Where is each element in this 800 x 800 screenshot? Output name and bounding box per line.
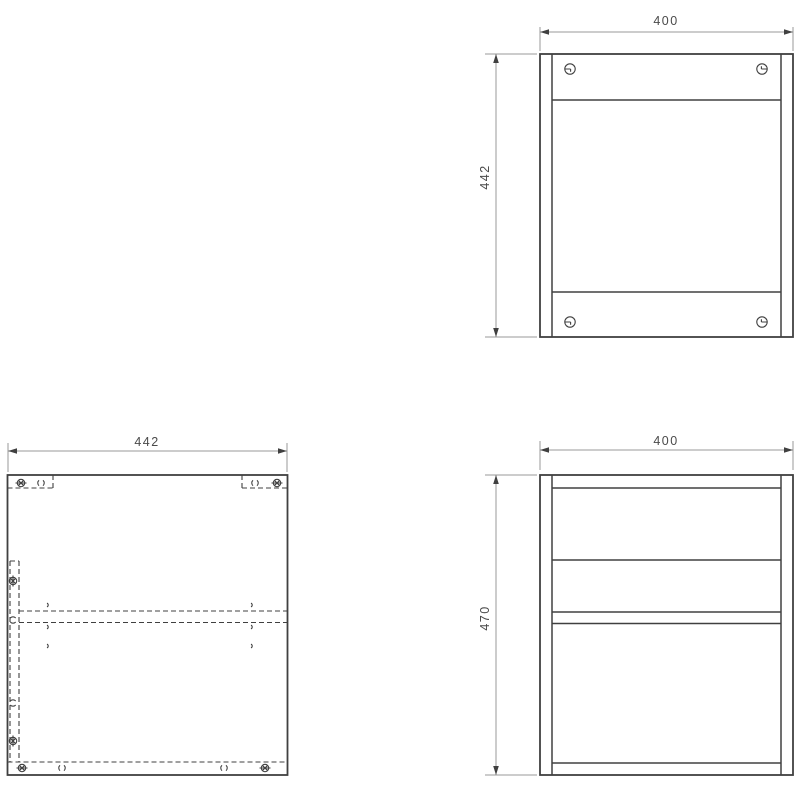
- side-view-height-dimension: 470: [478, 475, 537, 775]
- pilot-hole-icon: [251, 644, 252, 648]
- pilot-hole-icon: [47, 603, 48, 607]
- front-view-frame: [540, 54, 793, 337]
- cam-lock-icon: [16, 479, 27, 486]
- dowel-hole-icon: [38, 480, 44, 485]
- cam-lock-icon: [260, 764, 271, 771]
- dowel-hole-icon: [10, 700, 15, 706]
- front-height-dimension-label: 442: [478, 164, 492, 189]
- pilot-hole-icon: [251, 625, 252, 629]
- pilot-hole-icon: [47, 644, 48, 648]
- cam-lock-icon: [565, 317, 575, 327]
- top-width-dimension-label: 442: [134, 435, 159, 449]
- dowel-hole-icon: [252, 480, 258, 485]
- cam-lock-icon: [757, 317, 767, 327]
- top-view-hidden-edges: [8, 475, 288, 762]
- front-view-width-dimension: 400: [540, 14, 793, 51]
- cabinet-assembly-drawing: 400 442: [0, 0, 800, 800]
- dowel-hole-icon: [221, 765, 227, 770]
- top-view-pilot-holes: [47, 603, 252, 648]
- top-view: 442: [8, 435, 288, 775]
- top-view-panel: [8, 475, 288, 775]
- pilot-hole-icon: [251, 603, 252, 607]
- dowel-hole-icon: [59, 765, 65, 770]
- technical-drawing-canvas: 400 442: [0, 0, 800, 800]
- cam-lock-icon: [757, 64, 767, 74]
- cam-lock-icon: [17, 764, 28, 771]
- front-view-fasteners: [565, 64, 767, 327]
- front-width-dimension-label: 400: [653, 14, 678, 28]
- side-view-frame: [540, 475, 793, 775]
- side-view: 400 470: [478, 434, 793, 775]
- side-height-dimension-label: 470: [478, 605, 492, 630]
- top-view-fasteners: [9, 479, 282, 771]
- pilot-hole-icon: [47, 625, 48, 629]
- cam-lock-icon: [272, 479, 283, 486]
- side-view-width-dimension: 400: [540, 434, 793, 470]
- front-view-height-dimension: 442: [478, 54, 537, 337]
- front-view: 400 442: [478, 14, 793, 337]
- dowel-hole-icon: [10, 617, 15, 623]
- side-width-dimension-label: 400: [653, 434, 678, 448]
- cam-lock-icon: [565, 64, 575, 74]
- top-view-width-dimension: 442: [8, 435, 287, 472]
